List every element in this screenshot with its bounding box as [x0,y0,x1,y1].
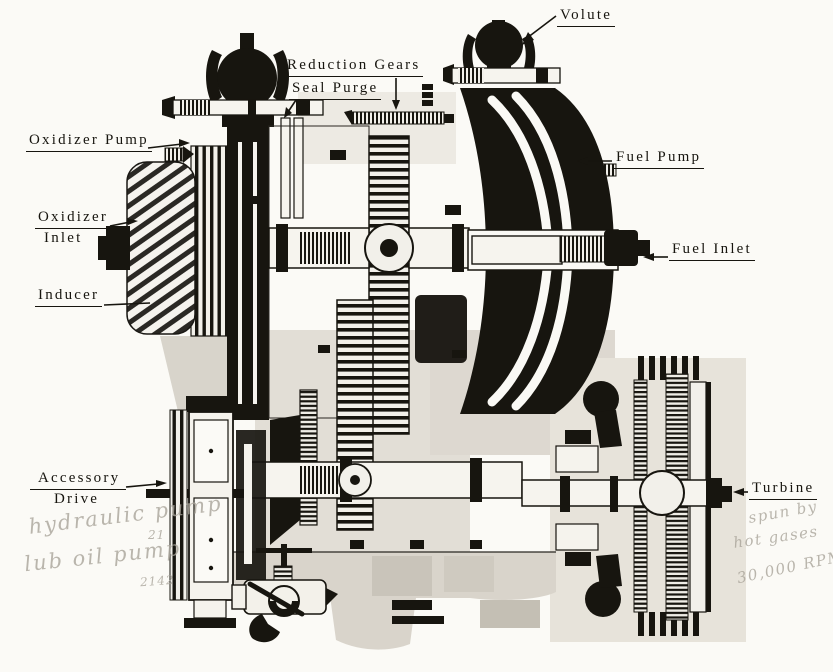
lower-shaft-shape [250,458,522,502]
label-volute: Volute [557,6,615,27]
label-turbine-text: Turbine [749,479,817,500]
label-oxidizer-pump-text: Oxidizer Pump [26,131,152,152]
inducer-shape [98,162,195,334]
label-fuel-pump: Fuel Pump [613,148,704,169]
label-fuel-inlet-text: Fuel Inlet [669,240,755,261]
label-turbine: Turbine [749,479,817,500]
label-oxidizer-pump: Oxidizer Pump [26,131,152,152]
label-oxidizer-inlet-line2: Inlet [44,229,111,248]
scanned-diagram-page: Volute Reduction Gears Seal Purge Oxidiz… [0,0,833,672]
label-accessory-drive: Accessory Drive [30,469,126,509]
label-inducer-text: Inducer [35,286,102,307]
pump-housing-column-shape [227,124,269,420]
label-volute-text: Volute [557,6,615,27]
fuel-inlet-shaft-shape [472,230,650,266]
label-seal-purge-text: Seal Purge [289,79,381,100]
label-fuel-inlet: Fuel Inlet [669,240,755,261]
label-reduction-gears: Reduction Gears [284,56,423,77]
handwritten-note-left-sub2: 2142 [140,573,175,589]
label-fuel-pump-text: Fuel Pump [613,148,704,169]
label-oxidizer-inlet: Oxidizer Inlet [35,208,111,248]
label-seal-purge: Seal Purge [289,79,381,100]
label-accessory-drive-line1: Accessory [30,469,126,490]
label-inducer: Inducer [35,286,102,307]
turbopump-cutaway-drawing [0,0,833,672]
upper-shaft-shape [269,224,469,272]
label-reduction-gears-text: Reduction Gears [284,56,423,77]
fuel-volute-shape [443,20,560,85]
label-oxidizer-inlet-line1: Oxidizer [35,208,111,229]
oxidizer-pump-shape [191,146,227,336]
